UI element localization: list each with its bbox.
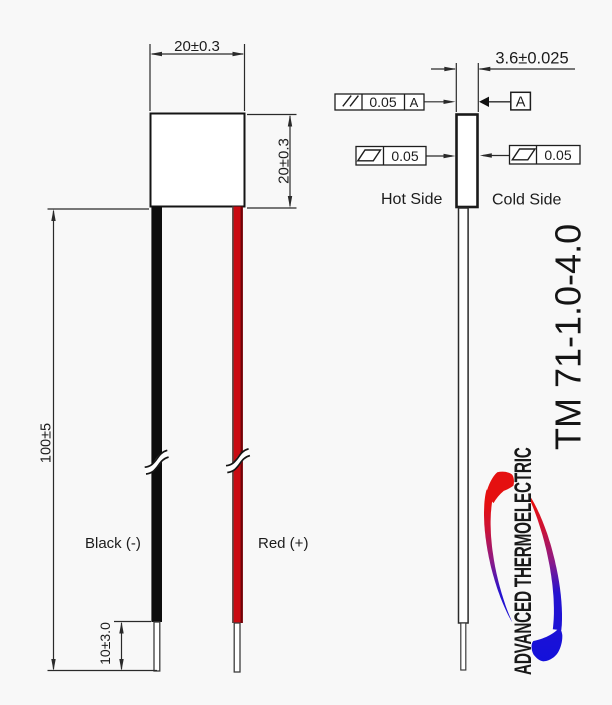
svg-text:0.05: 0.05 — [369, 94, 396, 110]
svg-text:0.05: 0.05 — [391, 148, 418, 164]
svg-text:Cold Side: Cold Side — [492, 192, 561, 209]
svg-text:20±0.3: 20±0.3 — [174, 38, 220, 55]
svg-text:10±3.0: 10±3.0 — [97, 622, 113, 665]
svg-text:Hot Side: Hot Side — [381, 191, 442, 208]
svg-text:Red (+): Red (+) — [258, 535, 308, 552]
svg-text:100±5: 100±5 — [39, 423, 55, 463]
svg-text:Black (-): Black (-) — [85, 535, 141, 552]
svg-text:TM 71-1.0-4.0: TM 71-1.0-4.0 — [548, 224, 589, 450]
svg-text:A: A — [410, 95, 419, 110]
svg-text:0.05: 0.05 — [544, 147, 571, 163]
svg-text:20±0.3: 20±0.3 — [276, 138, 293, 184]
svg-text:ADVANCED THERMOELECTRIC: ADVANCED THERMOELECTRIC — [511, 447, 537, 675]
svg-text:3.6±0.025: 3.6±0.025 — [495, 50, 568, 68]
svg-text:A: A — [516, 95, 526, 111]
